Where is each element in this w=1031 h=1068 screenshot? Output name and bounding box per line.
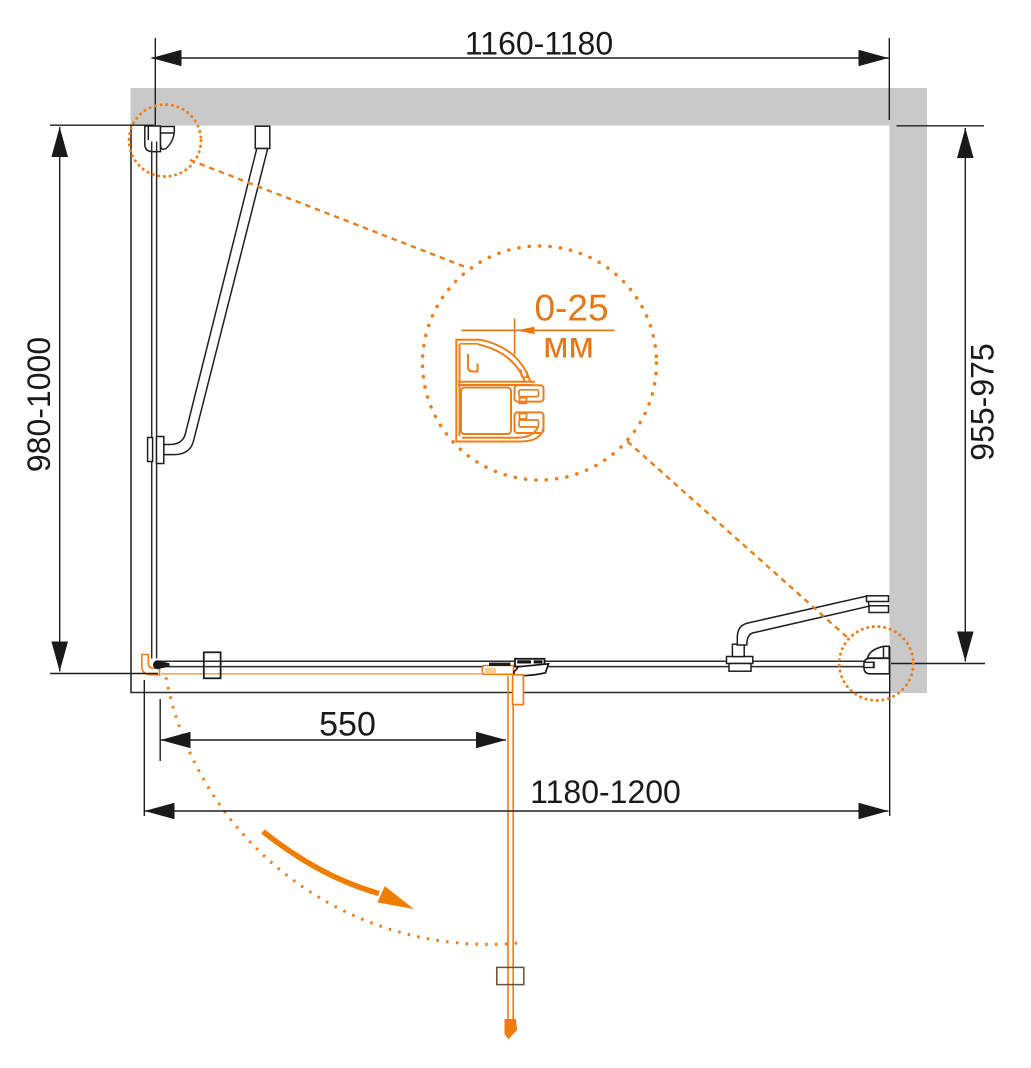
svg-text:980-1000: 980-1000 [21,337,57,472]
svg-text:1180-1200: 1180-1200 [530,774,681,810]
svg-text:955-975: 955-975 [965,343,1001,460]
svg-text:550: 550 [319,706,376,744]
svg-text:1160-1180: 1160-1180 [465,26,613,62]
svg-text:0-25: 0-25 [534,288,608,329]
